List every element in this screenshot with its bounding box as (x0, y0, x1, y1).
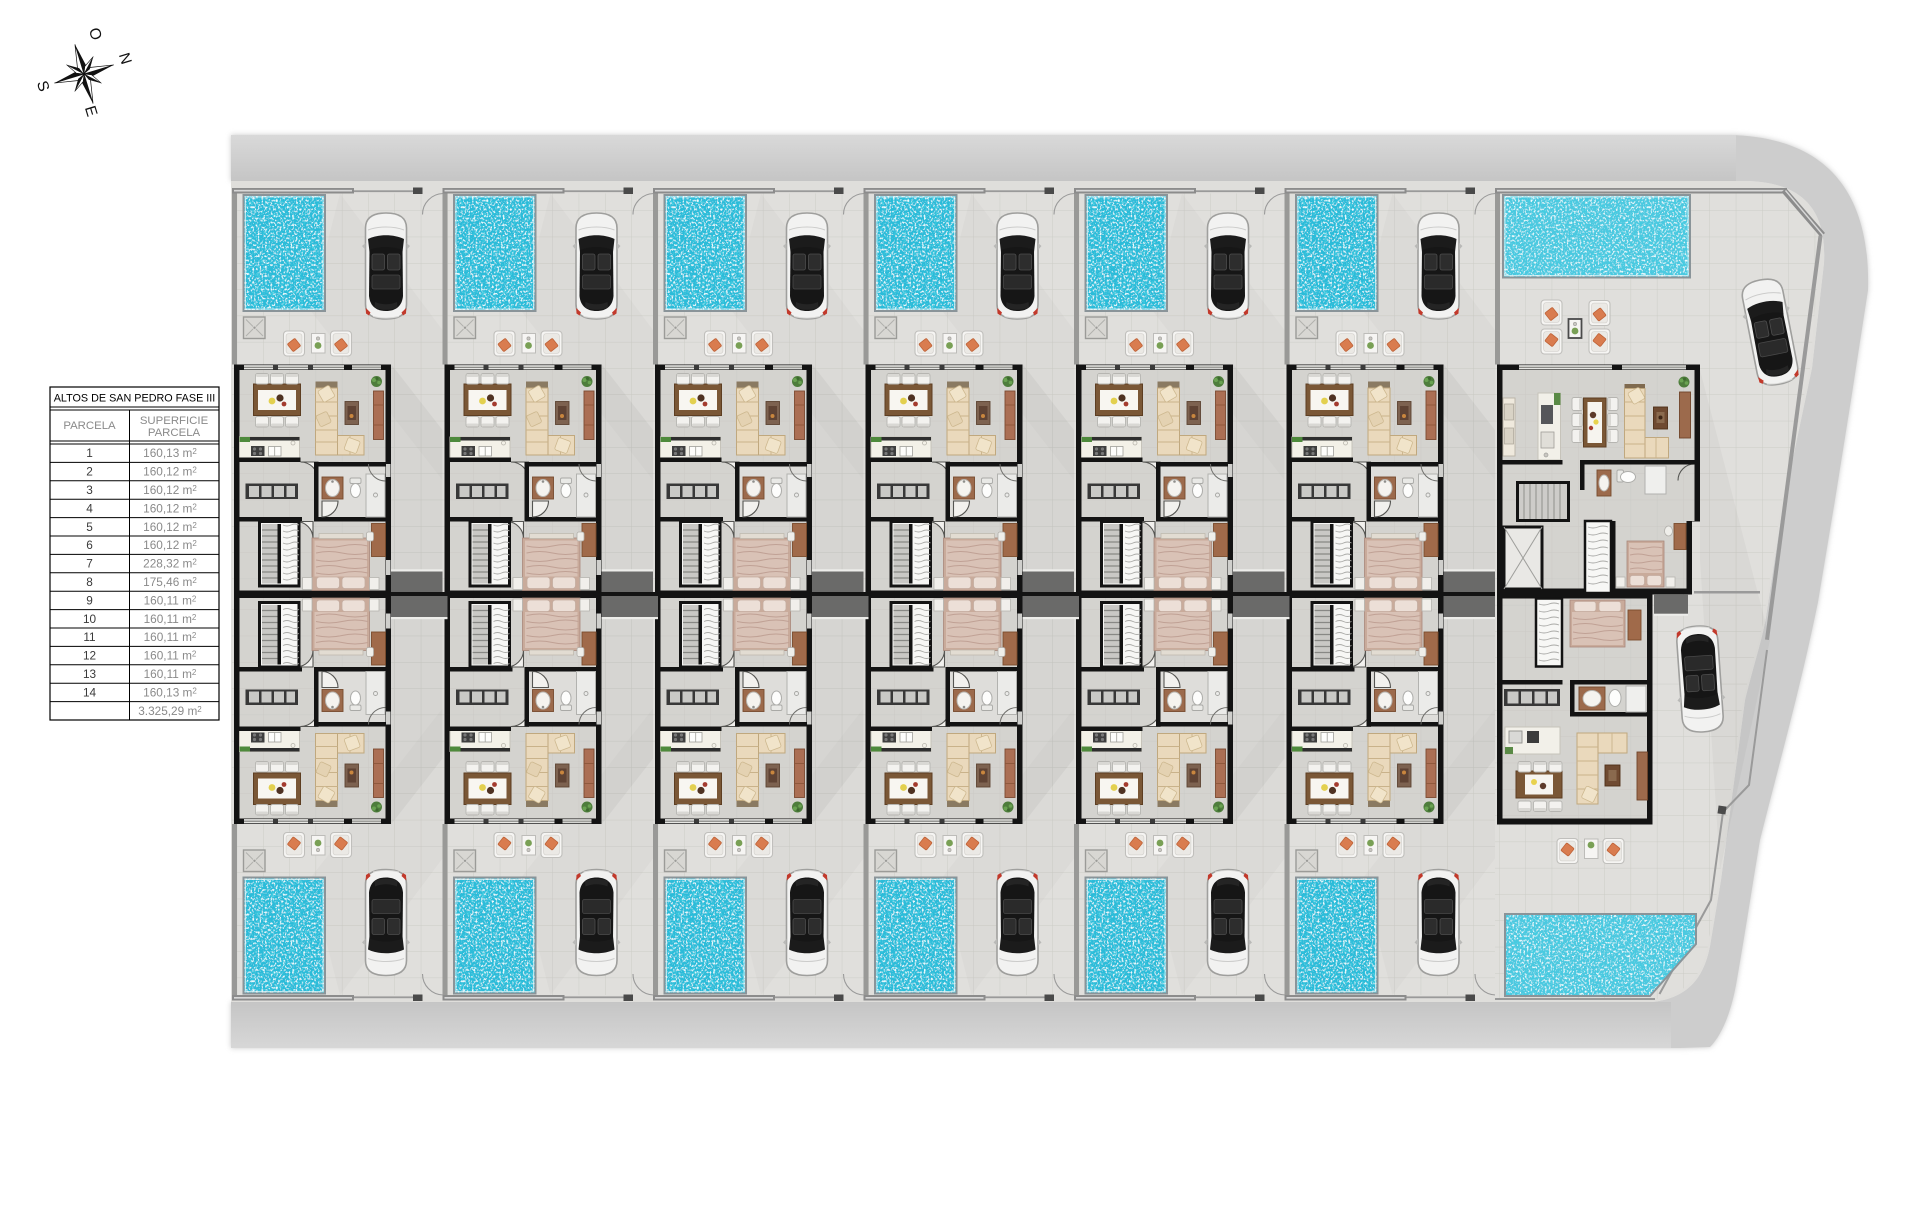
svg-text:160,11 m2: 160,11 m2 (144, 667, 197, 681)
svg-text:SUPERFICIE: SUPERFICIE (140, 415, 209, 427)
svg-text:160,13 m2: 160,13 m2 (143, 446, 197, 460)
svg-text:160,12 m2: 160,12 m2 (143, 465, 197, 479)
svg-text:7: 7 (86, 557, 93, 571)
svg-text:5: 5 (86, 520, 93, 534)
svg-text:160,13 m2: 160,13 m2 (143, 685, 197, 699)
svg-text:12: 12 (83, 649, 96, 663)
svg-text:E: E (81, 104, 100, 119)
svg-text:14: 14 (83, 685, 97, 699)
svg-text:6: 6 (86, 538, 93, 552)
svg-text:O: O (85, 26, 105, 43)
svg-text:11: 11 (83, 630, 95, 644)
svg-text:160,12 m2: 160,12 m2 (143, 520, 197, 534)
svg-text:3: 3 (86, 483, 93, 497)
svg-text:10: 10 (83, 612, 97, 626)
svg-text:228,32 m2: 228,32 m2 (143, 557, 197, 571)
svg-text:3.325,29 m2: 3.325,29 m2 (138, 704, 202, 718)
svg-text:160,11 m2: 160,11 m2 (144, 630, 197, 644)
svg-text:N: N (115, 51, 135, 67)
svg-text:8: 8 (86, 575, 93, 589)
svg-text:2: 2 (86, 465, 93, 479)
svg-text:13: 13 (83, 667, 97, 681)
svg-text:160,11 m2: 160,11 m2 (144, 612, 197, 626)
svg-text:4: 4 (86, 501, 93, 515)
svg-text:S: S (33, 79, 52, 94)
svg-text:160,12 m2: 160,12 m2 (143, 501, 197, 515)
svg-text:ALTOS DE SAN PEDRO FASE III: ALTOS DE SAN PEDRO FASE III (54, 393, 216, 405)
svg-text:175,46 m2: 175,46 m2 (143, 575, 197, 589)
svg-text:9: 9 (86, 593, 93, 607)
svg-text:160,12 m2: 160,12 m2 (143, 483, 197, 497)
svg-text:160,12 m2: 160,12 m2 (143, 538, 197, 552)
svg-text:1: 1 (86, 446, 93, 460)
svg-text:160,11 m2: 160,11 m2 (144, 649, 197, 663)
svg-text:PARCELA: PARCELA (63, 420, 116, 432)
svg-text:160,11 m2: 160,11 m2 (144, 593, 197, 607)
svg-text:PARCELA: PARCELA (148, 427, 201, 439)
